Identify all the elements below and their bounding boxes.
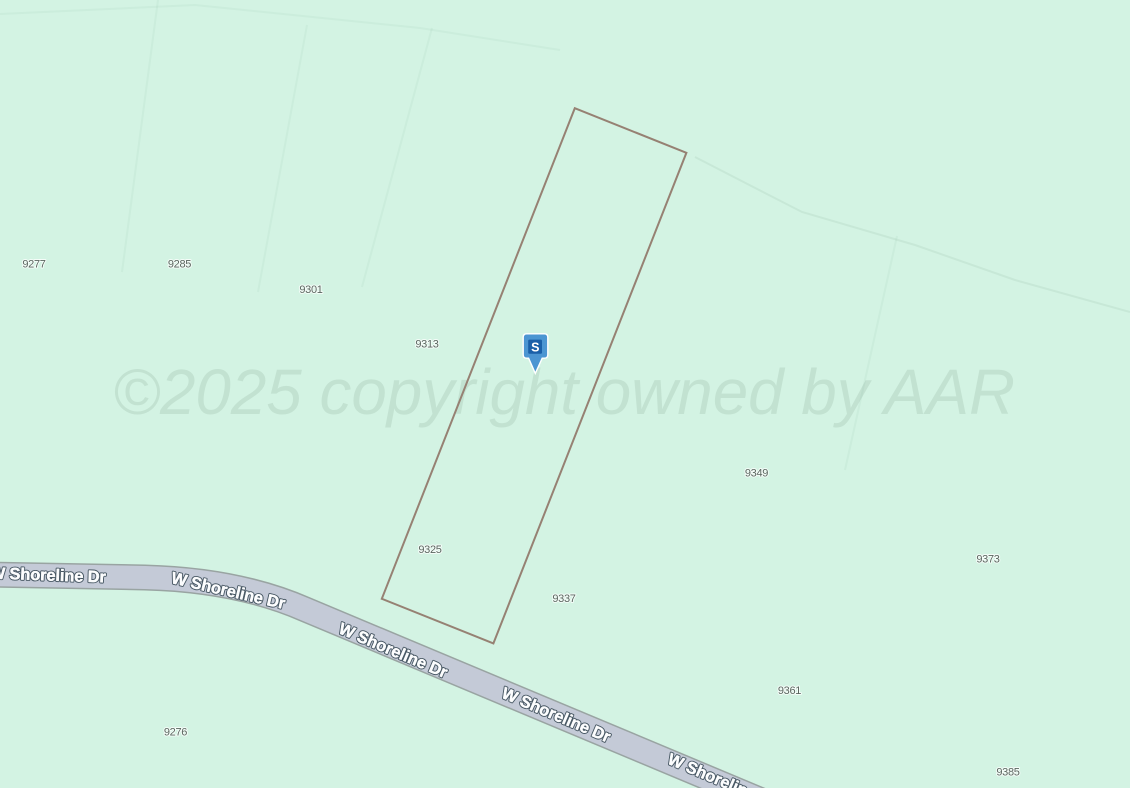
svg-text:9349: 9349 <box>745 468 768 480</box>
svg-text:9385: 9385 <box>996 767 1019 779</box>
svg-text:9361: 9361 <box>778 685 801 697</box>
svg-text:9373: 9373 <box>976 554 999 566</box>
svg-text:9285: 9285 <box>168 259 191 271</box>
svg-text:9313: 9313 <box>415 339 438 351</box>
svg-text:S: S <box>531 340 539 354</box>
svg-text:9325: 9325 <box>418 544 441 556</box>
svg-text:9337: 9337 <box>552 593 575 605</box>
svg-text:9277: 9277 <box>22 259 45 271</box>
svg-text:©2025 copyright owned by AAR: ©2025 copyright owned by AAR <box>113 356 1015 428</box>
svg-text:9276: 9276 <box>164 727 187 739</box>
svg-text:9301: 9301 <box>299 284 322 296</box>
